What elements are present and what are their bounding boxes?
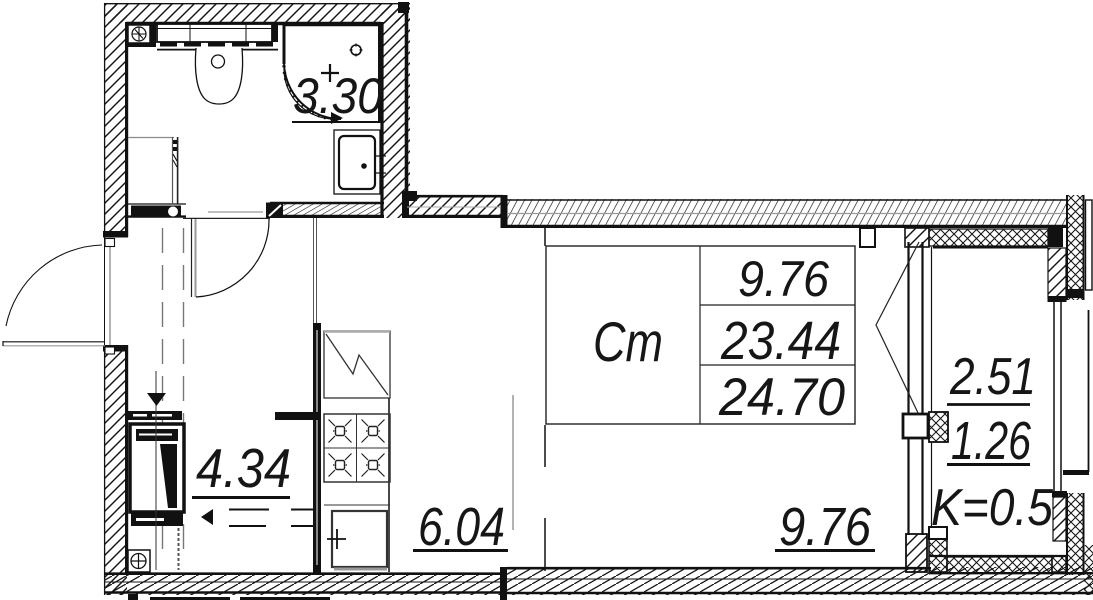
svg-text:4.34: 4.34 xyxy=(196,437,291,499)
svg-text:Ст: Ст xyxy=(593,310,663,373)
svg-text:2.51: 2.51 xyxy=(949,348,1036,406)
svg-text:24.70: 24.70 xyxy=(718,368,845,427)
svg-text:23.44: 23.44 xyxy=(720,311,841,371)
svg-text:3.30: 3.30 xyxy=(293,68,383,124)
svg-text:9.76: 9.76 xyxy=(779,497,872,557)
svg-text:6.04: 6.04 xyxy=(418,497,505,557)
svg-text:9.76: 9.76 xyxy=(738,251,829,307)
svg-text:K=0.5: K=0.5 xyxy=(931,479,1054,537)
svg-text:1.26: 1.26 xyxy=(951,411,1032,471)
